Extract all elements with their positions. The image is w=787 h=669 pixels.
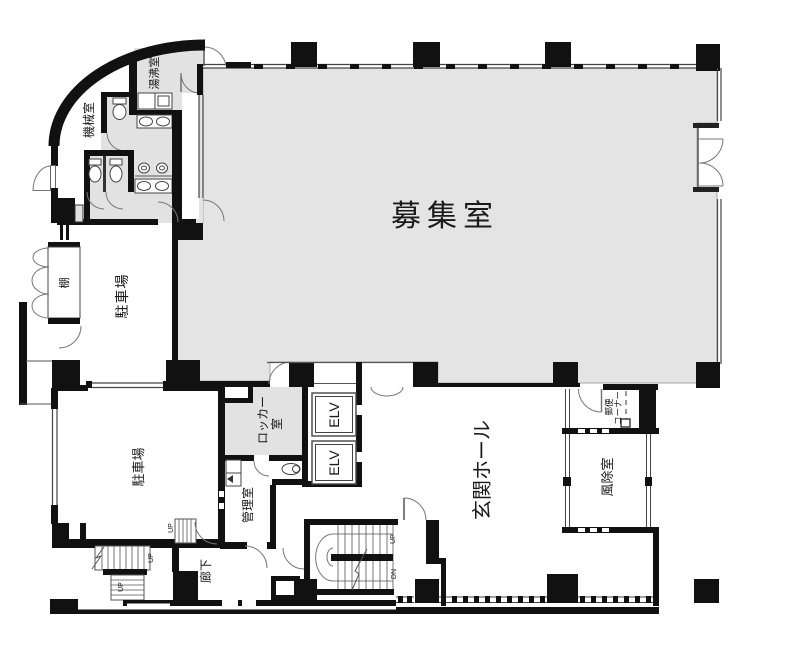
svg-text:管理室: 管理室 [240,487,255,523]
svg-text:駐車場: 駐車場 [114,274,130,319]
svg-text:DN: DN [391,569,398,579]
svg-text:湯沸室: 湯沸室 [147,57,161,90]
svg-text:風除室: 風除室 [600,457,615,496]
svg-text:募集室: 募集室 [391,200,499,233]
svg-text:UP: UP [390,534,397,544]
svg-text:UP: UP [148,553,155,563]
svg-text:駐車場: 駐車場 [131,447,146,486]
svg-text:廊下: 廊下 [198,559,213,583]
svg-text:ロッカー: ロッカー [256,396,270,444]
svg-text:ELV: ELV [326,402,342,428]
svg-text:UP: UP [168,523,175,533]
svg-text:機械室: 機械室 [81,102,96,138]
svg-text:UP: UP [118,582,125,592]
svg-text:室: 室 [269,418,284,430]
svg-text:玄関ホール: 玄関ホール [471,420,494,520]
svg-text:コーナー: コーナー [613,391,623,425]
svg-text:ELV: ELV [326,450,342,476]
svg-text:棚: 棚 [57,278,71,289]
